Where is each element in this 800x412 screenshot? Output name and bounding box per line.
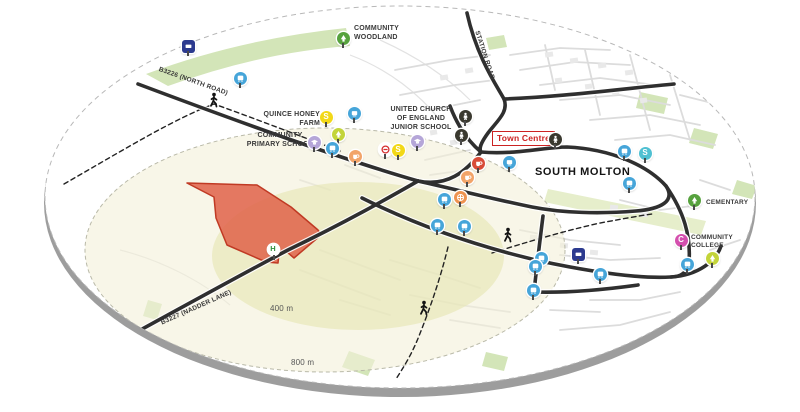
cementary-tree-icon xyxy=(690,196,699,205)
pin-stem xyxy=(680,245,682,251)
pin-stem xyxy=(187,51,189,57)
bus-stop-icon xyxy=(620,147,629,156)
landmark-icon xyxy=(350,109,359,118)
cafe-icon xyxy=(463,173,472,182)
bus-stop-pin[interactable] xyxy=(681,258,694,271)
site-location-map: COMMUNITY WOODLAND QUINCE HONEY FARM COM… xyxy=(0,0,800,412)
bus-stop-icon xyxy=(683,260,692,269)
pin-stem xyxy=(436,230,438,236)
shop-letter: S xyxy=(395,146,400,154)
bus-stop-pin[interactable] xyxy=(458,220,471,233)
bus-stop-icon xyxy=(529,286,538,295)
bus-stop-pin[interactable] xyxy=(594,268,607,281)
pin-stem xyxy=(463,231,465,237)
community-college-pin[interactable]: C xyxy=(675,234,688,247)
pin-stem xyxy=(384,154,386,160)
bus-stop-icon xyxy=(625,179,634,188)
pin-stem xyxy=(466,182,468,188)
pedestrian-icon xyxy=(208,92,220,113)
pharmacy-icon xyxy=(456,193,465,202)
pin-stem xyxy=(577,259,579,265)
bus-stop-icon xyxy=(531,262,540,271)
town-amenity-pin[interactable] xyxy=(455,129,468,142)
pub-pin[interactable] xyxy=(472,157,485,170)
pin-stem xyxy=(644,158,646,164)
pin-stem xyxy=(342,43,344,49)
bus-stop-sign-pin[interactable] xyxy=(182,40,195,53)
hospital-letter: H xyxy=(270,245,275,253)
bus-stop-icon xyxy=(236,74,245,83)
pin-stem xyxy=(239,83,241,89)
bus-stop-pin[interactable] xyxy=(234,72,247,85)
green-space-icon xyxy=(708,254,717,263)
label-community-college: COMMUNITY COLLEGE xyxy=(691,234,733,251)
label-ring-400m: 400 m xyxy=(270,304,293,314)
label-cementary: CEMENTARY xyxy=(706,199,748,207)
shop-pin[interactable]: S xyxy=(320,111,333,124)
shop-pin[interactable]: S xyxy=(639,147,652,160)
pin-stem xyxy=(554,144,556,150)
town-amenity-pin[interactable] xyxy=(459,110,472,123)
bus-stop-pin[interactable] xyxy=(326,142,339,155)
pin-stem xyxy=(464,121,466,127)
bus-stop-icon xyxy=(328,144,337,153)
shop-letter: S xyxy=(642,149,647,157)
pin-stem xyxy=(416,146,418,152)
pin-stem xyxy=(711,263,713,269)
landmark-pin[interactable] xyxy=(348,107,361,120)
amenity-pin[interactable] xyxy=(503,156,516,169)
bus-stop-pin[interactable] xyxy=(431,219,444,232)
label-south-molton: SOUTH MOLTON xyxy=(535,165,630,179)
primary-school-icon xyxy=(310,138,319,147)
green-space-pin[interactable] xyxy=(706,252,719,265)
shop-pin[interactable]: S xyxy=(392,144,405,157)
pin-stem xyxy=(331,153,333,159)
pin-stem xyxy=(477,168,479,174)
pin-stem xyxy=(459,202,461,208)
junior-school-pin[interactable] xyxy=(411,135,424,148)
label-quince-honey-farm: QUINCE HONEY FARM xyxy=(245,110,320,128)
pin-stem xyxy=(623,156,625,162)
shop-letter: S xyxy=(323,113,328,121)
hospital-pin[interactable]: H xyxy=(268,244,279,255)
label-town-centre[interactable]: Town Centre xyxy=(492,131,555,146)
green-space-icon xyxy=(334,130,343,139)
town-amenity-icon xyxy=(461,112,470,121)
bus-stop-pin[interactable] xyxy=(623,177,636,190)
pin-stem xyxy=(693,205,695,211)
community-college-letter: C xyxy=(678,236,684,244)
bus-stop-pin[interactable] xyxy=(527,284,540,297)
community-woodland-tree-pin[interactable] xyxy=(337,32,350,45)
primary-school-pin[interactable] xyxy=(308,136,321,149)
town-amenity-pin[interactable] xyxy=(549,133,562,146)
bus-stop-pin[interactable] xyxy=(438,193,451,206)
community-woodland-tree-icon xyxy=(339,34,348,43)
pin-stem xyxy=(460,140,462,146)
label-united-church-junior-school: UNITED CHURCH OF ENGLAND JUNIOR SCHOOL xyxy=(377,105,465,132)
cafe-icon xyxy=(351,152,360,161)
pin-stem xyxy=(354,161,356,167)
bus-stop-icon xyxy=(596,270,605,279)
no-entry-pin[interactable] xyxy=(379,143,392,156)
bus-stop-sign-icon xyxy=(184,42,193,51)
pin-stem xyxy=(686,269,688,275)
pin-stem xyxy=(353,118,355,124)
pin-stem xyxy=(325,122,327,128)
town-amenity-icon xyxy=(457,131,466,140)
junior-school-icon xyxy=(413,137,422,146)
pin-stem xyxy=(313,147,315,153)
pin-stem xyxy=(273,255,275,261)
map-graphic xyxy=(0,0,800,412)
label-community-woodland: COMMUNITY WOODLAND xyxy=(354,24,399,42)
bus-stop-icon xyxy=(460,222,469,231)
bus-stop-sign-pin[interactable] xyxy=(572,248,585,261)
bus-stop-pin[interactable] xyxy=(618,145,631,158)
town-amenity-icon xyxy=(551,135,560,144)
label-ring-800m: 800 m xyxy=(291,358,314,368)
pin-stem xyxy=(397,155,399,161)
bus-stop-icon xyxy=(440,195,449,204)
pin-stem xyxy=(508,167,510,173)
bus-stop-icon xyxy=(433,221,442,230)
cafe-pin[interactable] xyxy=(461,171,474,184)
cementary-tree-pin[interactable] xyxy=(688,194,701,207)
green-space-pin[interactable] xyxy=(332,128,345,141)
pin-stem xyxy=(443,204,445,210)
pedestrian-icon xyxy=(418,300,430,321)
pedestrian-icon xyxy=(502,227,514,248)
pin-stem xyxy=(532,295,534,301)
pharmacy-pin[interactable] xyxy=(454,191,467,204)
cafe-pin[interactable] xyxy=(349,150,362,163)
pin-stem xyxy=(628,188,630,194)
amenity-icon xyxy=(505,158,514,167)
pub-icon xyxy=(474,159,483,168)
bus-stop-sign-icon xyxy=(574,250,583,259)
no-entry-icon xyxy=(381,145,390,154)
pin-stem xyxy=(599,279,601,285)
bus-stop-pin[interactable] xyxy=(529,260,542,273)
pin-stem xyxy=(534,271,536,277)
